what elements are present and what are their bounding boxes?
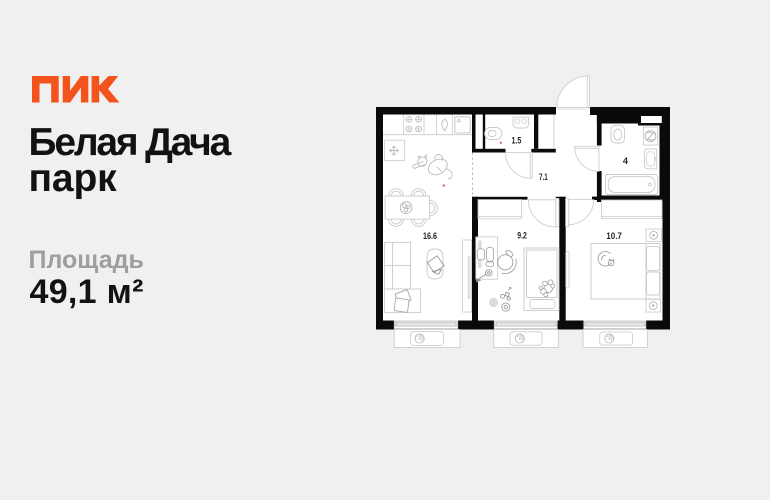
svg-text:4: 4 (623, 156, 629, 166)
svg-text:7.1: 7.1 (539, 172, 548, 182)
svg-text:16.6: 16.6 (423, 231, 437, 241)
svg-text:1.5: 1.5 (512, 136, 522, 146)
svg-text:9.2: 9.2 (517, 231, 527, 241)
svg-text:10.7: 10.7 (606, 231, 622, 241)
